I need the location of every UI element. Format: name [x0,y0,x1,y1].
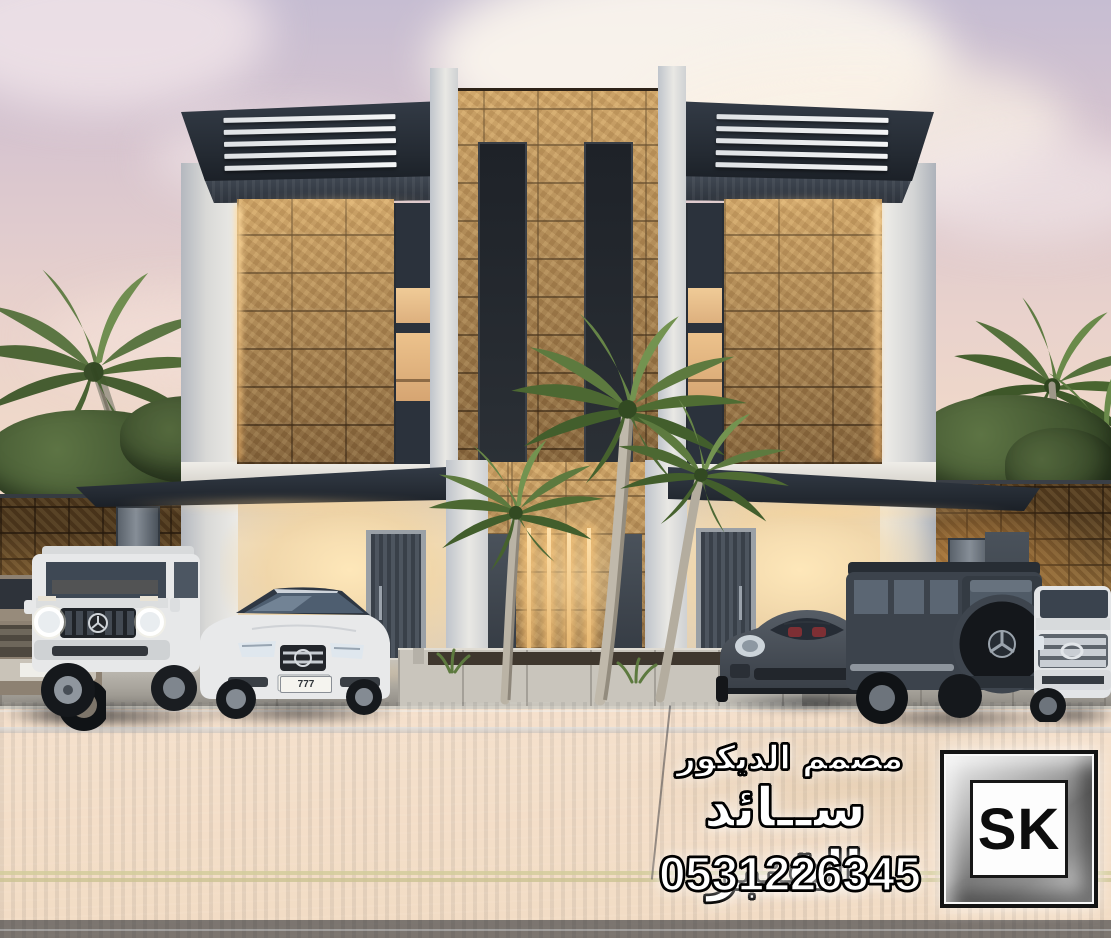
license-plate-number: 777 [298,679,315,690]
watermark-phone: 0531226345 [630,846,950,904]
car-s-class-white [192,583,396,719]
sk-logo-text: SK [970,780,1068,878]
car-g-class-white [22,540,212,726]
watermark-name: ســائد القنبر [618,776,952,852]
car-land-cruiser-right [1030,580,1111,722]
license-plate: 777 [280,676,332,693]
car-g-class-dark [842,552,1052,728]
sk-logo: SK [940,750,1098,908]
villa-render-scene: 777 [0,0,1111,938]
